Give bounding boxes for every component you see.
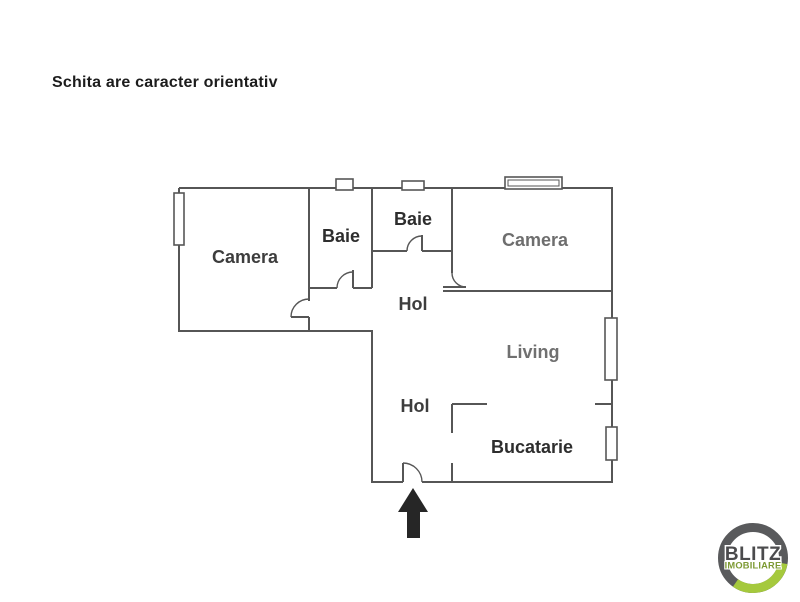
entrance-up-arrow-icon [398, 488, 428, 538]
door-swing-icon-baie-left [337, 272, 353, 288]
window-icon-camera-left [174, 193, 184, 245]
window-icon-bucatarie [606, 427, 617, 460]
window-icon-camera-right [505, 177, 562, 189]
window-icon-baie-left [336, 179, 353, 190]
room-label-living: Living [507, 342, 560, 362]
room-labels: Camera Baie Baie Camera Hol Living Hol B… [212, 209, 573, 457]
door-swing-icon-camera-left [291, 299, 309, 317]
room-label-baie-left: Baie [322, 226, 360, 246]
door-swing-icon-baie-middle [407, 236, 422, 251]
room-label-camera-right: Camera [502, 230, 569, 250]
window-icon-baie-middle [402, 181, 424, 190]
logo-tagline-text: IMOBILIARE [725, 561, 782, 571]
room-label-camera-left: Camera [212, 247, 279, 267]
room-label-hol-lower: Hol [401, 396, 430, 416]
window-icon-living [605, 318, 617, 380]
door-swing-icons [291, 236, 466, 482]
room-label-hol-upper: Hol [399, 294, 428, 314]
door-swing-icon-entrance [403, 463, 422, 482]
door-swing-icon-camera-right [452, 273, 466, 287]
floor-plan-drawing: Camera Baie Baie Camera Hol Living Hol B… [0, 0, 800, 600]
room-label-baie-middle: Baie [394, 209, 432, 229]
room-label-bucatarie: Bucatarie [491, 437, 573, 457]
brand-logo: BLITZ IMOBILIARE [709, 514, 797, 602]
floor-plan-page: Schita are caracter orientativ Ca [0, 0, 800, 600]
